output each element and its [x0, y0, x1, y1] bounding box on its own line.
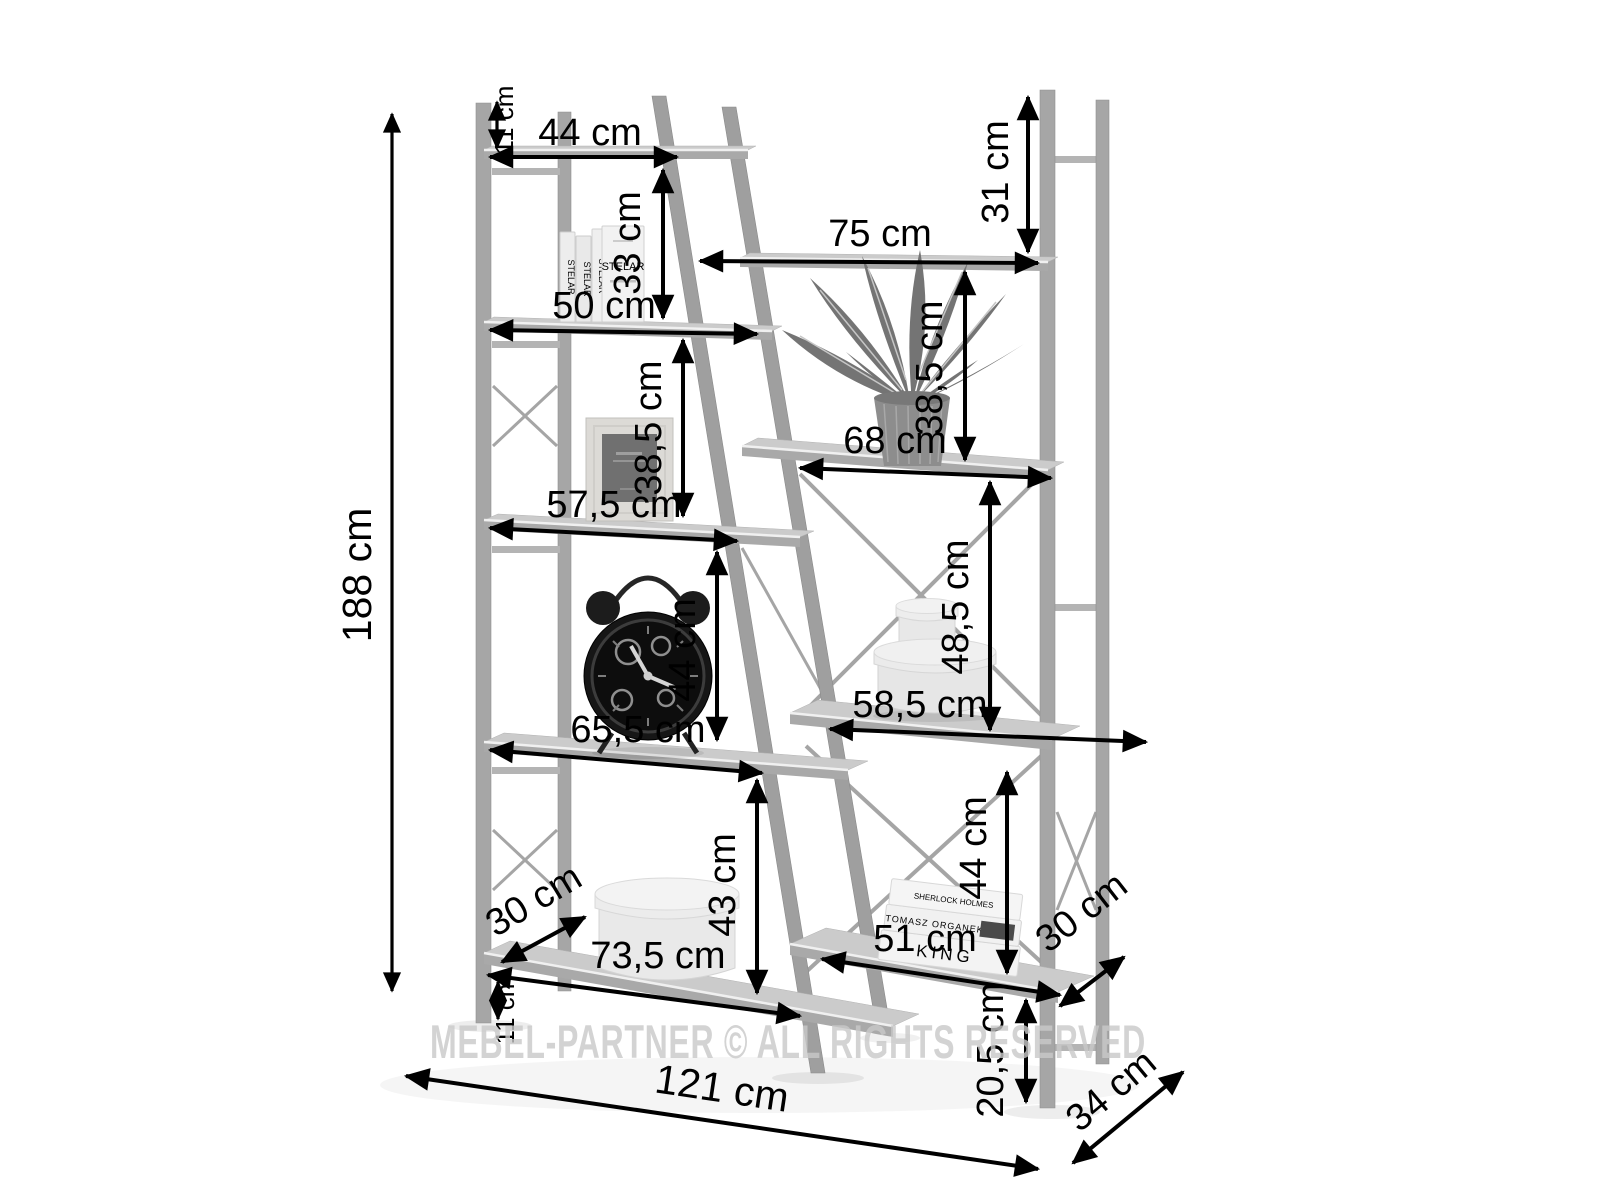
dim-label-right-shelf-2: 68 cm	[843, 420, 946, 462]
dim-label-left-gap-1: 33 cm	[607, 191, 649, 294]
left-rung-1	[492, 168, 560, 175]
left-rung-2	[492, 341, 560, 348]
left-rung-4	[492, 767, 560, 774]
left-front-post	[476, 103, 491, 1023]
dim-label-left-shelf-4: 65,5 cm	[570, 709, 705, 751]
dim-label-left-shelf-5: 73,5 cm	[590, 935, 725, 977]
dim-label-right-shelf-4: 51 cm	[873, 918, 976, 960]
dim-label-right-shelf-3: 58,5 cm	[852, 684, 987, 726]
plant-leaves	[782, 250, 1024, 404]
dimension-diagram-ladder-bookcase: STELAR STELAR STELAR STELAR	[0, 0, 1600, 1200]
diagram-canvas: STELAR STELAR STELAR STELAR	[0, 0, 1600, 1200]
dim-arrow-right-shelf-1	[700, 261, 1038, 263]
dim-label-left-gap-2: 38,5 cm	[628, 360, 670, 495]
dim-label-right-gap-1: 38,5 cm	[909, 300, 951, 435]
dim-label-total-height: 188 cm	[334, 508, 380, 642]
clock-handle	[616, 578, 680, 600]
right-rung-2	[1055, 604, 1096, 611]
right-rung-1	[1055, 156, 1096, 163]
dim-label-left-shelf-1: 44 cm	[538, 112, 641, 154]
dim-label-right-top-offset: 31 cm	[975, 120, 1017, 223]
dim-label-right-shelf-1: 75 cm	[828, 213, 931, 255]
clock-bell-left	[586, 591, 620, 625]
dim-label-right-gap-3: 44 cm	[953, 796, 995, 899]
dim-label-left-gap-3: 44 cm	[662, 598, 704, 701]
left-rung-3	[492, 546, 560, 553]
watermark-text: MEBEL-PARTNER © ALL RIGHTS RESERVED	[430, 1015, 1146, 1068]
dim-label-left-top-offset: 11 cm	[489, 86, 519, 155]
dim-label-right-gap-2: 48,5 cm	[935, 539, 977, 674]
dim-label-left-gap-4: 43 cm	[702, 833, 744, 936]
dim-label-left-shelf-3: 57,5 cm	[546, 484, 681, 526]
dim-label-left-shelf-2: 50 cm	[552, 285, 655, 327]
